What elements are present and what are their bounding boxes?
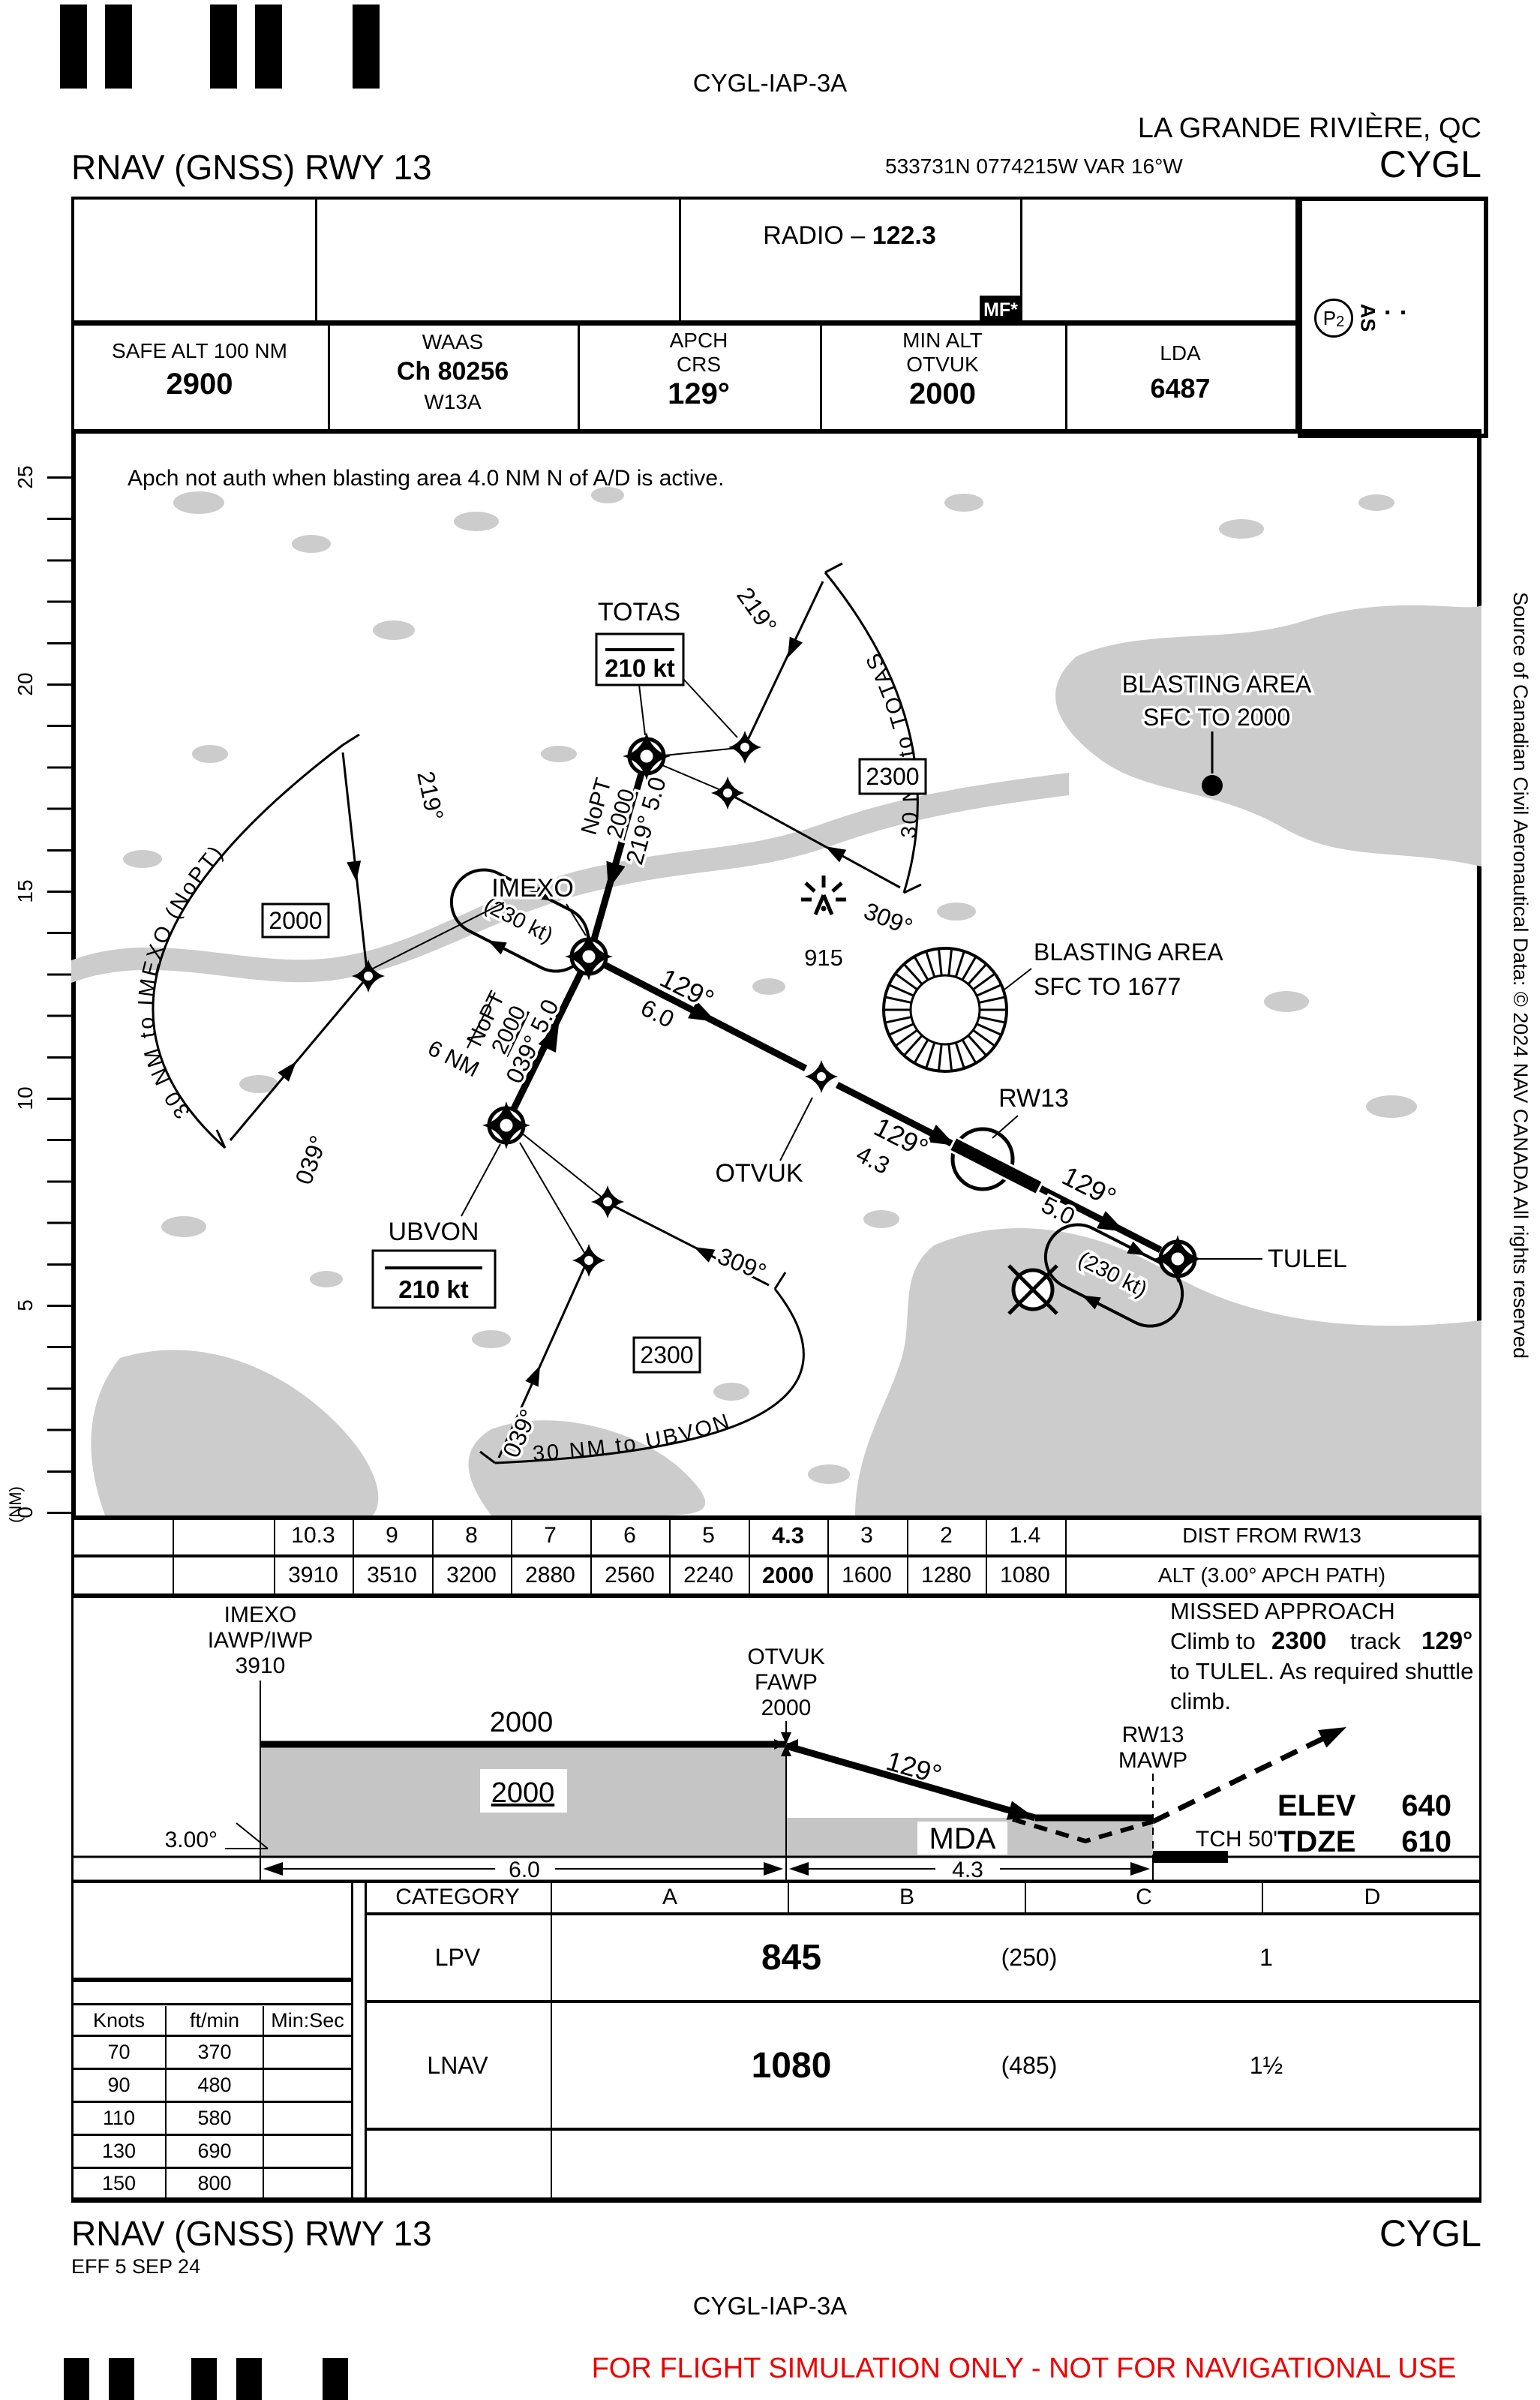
lnav-label: LNAV [365,2003,551,2128]
scale-label-10: 10 [11,1083,41,1113]
rate-header-ftmin: ft/min [167,2006,263,2035]
scale-label-15: 15 [11,876,41,906]
missed-l4: climb. [1170,1688,1231,1714]
dist-cell: 5 [669,1517,748,1554]
arc-ubvon-altitude: 2300 [640,1341,693,1368]
crs-label: CRS [578,353,820,377]
apch-crs-value: 129° [578,377,820,411]
effective-date: EFF 5 SEP 24 [71,2255,200,2278]
scale-label-5: 5 [11,1290,41,1320]
totas-waypoint-icon [623,732,671,780]
entry-brg-309-bottom: 309° [714,1242,770,1286]
waas-ident: W13A [328,390,578,414]
arc-entry-lines [230,581,900,1458]
min-alt-fix: OTVUK [820,353,1065,377]
imexo-waypoint-icon [565,933,613,981]
profile-angle: 3.00° [165,1828,218,1852]
radio-frequency: RADIO – 122.3 [679,221,1020,251]
alt-cell-faf: 2000 [749,1557,827,1593]
flyby-star-b-icon [711,776,744,810]
alt-cell: 3910 [274,1557,353,1593]
alt-cell: 1280 [907,1557,986,1593]
rate-header-minsec: Min:Sec [264,2006,351,2035]
arc-imexo-altitude: 2000 [269,907,322,934]
profile-otvuk-alt: 2000 [761,1696,812,1720]
entry-brg-039-left: 039° [290,1132,332,1188]
profile-final-brg: 129° [883,1745,945,1790]
dist-cell: 7 [511,1517,590,1554]
alt-cell: 3510 [353,1557,431,1593]
blasting-area-ring-icon [884,948,1007,1071]
category-b: B [789,1882,1025,1913]
alt-cell: 2880 [511,1557,590,1593]
dim-6nm: 6.0 [509,1858,540,1882]
procedure-title: RNAV (GNSS) RWY 13 [71,147,432,188]
svg-text:30 NM to IMEXO (NoPT): 30 NM to IMEXO (NoPT) [134,840,230,1123]
missed-l2b: 2300 [1271,1627,1326,1654]
profile-otvuk-fix: OTVUK [747,1645,824,1669]
entry-brg-219-top: 219° [731,582,782,638]
source-note: Source of Canadian Civil Aeronautical Da… [1508,439,1532,1512]
category-a: A [552,1882,788,1913]
arc-30nm-totas: 30 NM to TOTAS 2300 [825,563,926,893]
dots-symbol: · · [1384,299,1408,328]
profile-view: IMEXO IAWP/IWP 3910 2000 2000 OTVUK FAWP… [71,1598,1481,1883]
apch-label: APCH [578,329,820,353]
footer-title: RNAV (GNSS) RWY 13 [71,2213,432,2254]
lpv-da: 845 [716,1915,866,2000]
flyby-star-e-icon [572,1244,605,1277]
simulation-warning: FOR FLIGHT SIMULATION ONLY - NOT FOR NAV… [525,2353,1523,2385]
lnav-da: 1080 [716,2003,866,2128]
lpv-label: LPV [365,1915,551,2000]
mandatory-frequency-badge: MF* [980,296,1022,324]
tdze-label: TDZE [1277,1825,1355,1858]
scale-label-25: 25 [11,462,41,492]
lnav-vis: 1½ [1191,2003,1341,2128]
plan-view: Apch not auth when blasting area 4.0 NM … [71,431,1481,1515]
blasting-2000-line2: SFC TO 2000 [1143,704,1290,731]
airport-code: CYGL [1181,143,1481,186]
missed-l3: to TULEL. As required shuttle [1170,1658,1473,1684]
footer-airport-code: CYGL [1181,2212,1481,2255]
profile-mda-label: MDA [929,1822,996,1855]
flyby-star-d-icon [591,1185,624,1218]
rate-knots: 70 [73,2037,165,2068]
min-alt-label: MIN ALT [820,329,1065,353]
arc-totas-altitude: 2300 [866,763,919,790]
totas-label: TOTAS [598,598,680,626]
rate-knots: 110 [73,2103,165,2134]
dist-cell: 10.3 [274,1517,353,1554]
chart-code-bottom: CYGL-IAP-3A [0,2292,1540,2320]
as-symbol: AS [1355,304,1379,332]
dist-cell-faf: 4.3 [749,1517,827,1554]
missed-l2a: Climb to [1170,1628,1256,1654]
scale-ruler [47,474,71,1514]
rw13-label: RW13 [998,1084,1069,1113]
dist-cell: 8 [432,1517,511,1554]
otvuk-label: OTVUK [715,1159,803,1188]
rate-fpm: 690 [167,2136,263,2167]
terrain [71,487,1481,1515]
elev-value: 640 [1401,1789,1451,1822]
dist-row-label: DIST FROM RW13 [1065,1517,1478,1554]
tower-obstacle-icon [801,876,846,915]
rate-fpm: 480 [167,2070,263,2101]
scale-unit: (NM) [6,1486,26,1523]
rate-knots: 90 [73,2070,165,2101]
profile-segment-altitude: 2000 [490,1707,554,1738]
abandoned-aerodrome-icon [1009,1266,1057,1314]
lpv-vis-metric: (250) [954,1915,1104,2000]
min-alt-value: 2000 [820,377,1065,411]
rate-fpm: 800 [167,2169,263,2197]
profile-imexo-alt: 3910 [236,1654,286,1678]
rate-knots: 130 [73,2136,165,2167]
blasting-2000-dot [1202,775,1223,796]
final2-label: 129° 4.3 [852,1110,933,1191]
profile-tch: TCH 50' [1196,1827,1277,1852]
blasting-2000-line1: BLASTING AREA [1122,671,1312,698]
alt-cell: 2560 [590,1557,669,1593]
profile-min-altitude: 2000 [491,1777,555,1809]
airport-coordinates: 533731N 0774215W VAR 16°W [885,155,1183,179]
lpv-vis: 1 [1191,1915,1341,2000]
totas-speed: 210 kt [605,654,675,682]
missed-approach-title: MISSED APPROACH [1170,1598,1395,1624]
blasting-1677-line2: SFC TO 1677 [1034,973,1181,1000]
dist-cell: 6 [590,1517,669,1554]
alt-row-label: ALT (3.00° APCH PATH) [1065,1557,1478,1593]
dist-cell: 2 [907,1517,986,1554]
dist-cell: 1.4 [986,1517,1064,1554]
profile-imexo-fix: IMEXO [224,1603,297,1627]
lda-value: 6487 [1065,373,1295,404]
profile-otvuk-role: FAWP [755,1670,818,1695]
category-d: D [1263,1882,1481,1913]
chart-code-top: CYGL-IAP-3A [0,69,1540,98]
otvuk-waypoint-icon [805,1060,838,1093]
safe-alt-label: SAFE ALT 100 NM [71,339,328,363]
elev-label: ELEV [1277,1789,1356,1822]
alt-cell: 1600 [827,1557,906,1593]
profile-mawp-fix: RW13 [1122,1723,1184,1747]
rate-fpm: 370 [167,2037,263,2068]
p2-symbol: P2 [1314,299,1353,338]
profile-imexo-role: IAWP/IWP [208,1628,314,1653]
tdze-value: 610 [1401,1825,1451,1858]
ubvon-waypoint-icon [482,1101,530,1149]
imexo-label: IMEXO [491,874,574,903]
missed-l2c: track [1350,1628,1401,1654]
rw13-runway-icon [949,1129,1043,1194]
dist-cell: 9 [353,1517,431,1554]
alt-cell: 2240 [669,1557,748,1593]
tulel-label: TULEL [1268,1245,1347,1273]
missed-l2d: 129° [1421,1627,1472,1654]
approach-plate: CYGL-IAP-3A LA GRANDE RIVIÈRE, QC RNAV (… [0,0,1540,2400]
profile-mawp-role: MAWP [1118,1748,1187,1773]
lda-label: LDA [1065,341,1295,365]
plan-note: Apch not auth when blasting area 4.0 NM … [128,466,724,491]
category-c: C [1026,1882,1262,1913]
alt-cell: 3200 [432,1557,511,1593]
rate-header-knots: Knots [73,2006,165,2035]
ubvon-label: UBVON [389,1218,479,1246]
rate-knots: 150 [73,2169,165,2197]
lnav-vis-metric: (485) [954,2003,1104,2128]
tower-elevation: 915 [804,945,843,971]
blasting-1677-line1: BLASTING AREA [1034,939,1223,966]
scale-label-20: 20 [11,669,41,699]
ubvon-speed: 210 kt [398,1275,469,1303]
flyby-star-a-icon [728,731,761,764]
entry-brg-219-left: 219° [412,769,449,823]
rate-fpm: 580 [167,2103,263,2134]
entry-brg-309-top: 309° [860,897,917,941]
dim-4-3nm: 4.3 [952,1858,983,1882]
waas-label: WAAS [328,330,578,354]
category-label: CATEGORY [365,1882,551,1913]
dist-cell: 3 [827,1517,906,1554]
safe-alt-value: 2900 [71,368,328,401]
city-name: LA GRANDE RIVIÈRE, QC [731,113,1481,145]
alt-cell: 1080 [986,1557,1064,1593]
waas-channel: Ch 80256 [328,357,578,386]
